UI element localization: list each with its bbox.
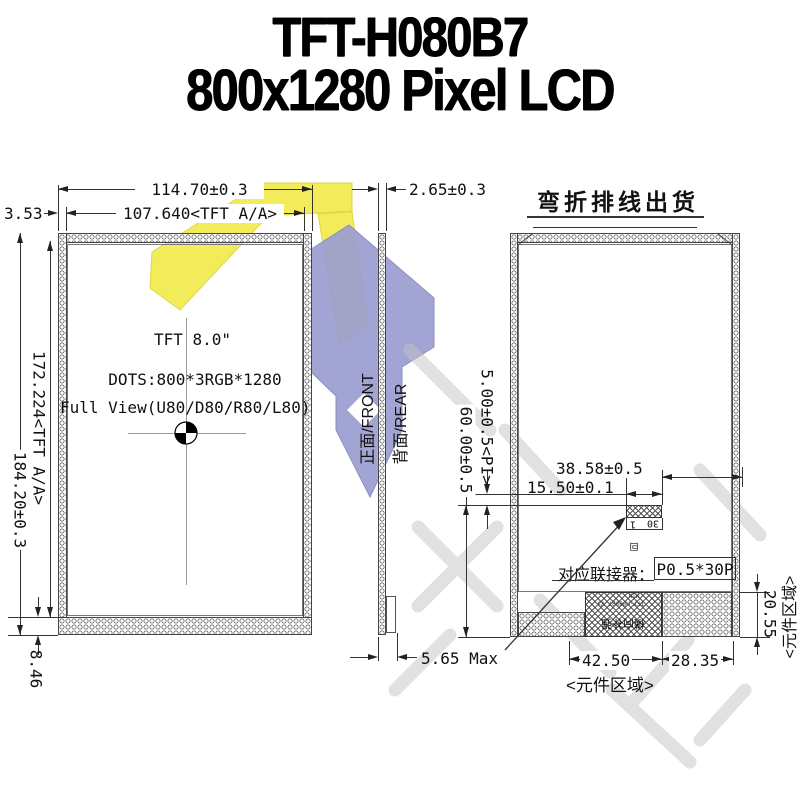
arrow-right — [732, 474, 742, 480]
dim-line — [20, 233, 21, 635]
hatch-bottom-right — [662, 592, 732, 637]
dim-line — [350, 657, 368, 658]
pin-number-30: 30 — [647, 518, 659, 529]
arrow-up — [754, 637, 760, 647]
panel-size-label: TFT 8.0" — [95, 330, 290, 349]
arrow-left — [66, 210, 76, 216]
label-rear-side: 背面/REAR — [387, 384, 411, 465]
arrow-right — [294, 210, 304, 216]
arrow-left — [662, 474, 672, 480]
active-area-outline — [67, 244, 303, 616]
dim-line — [757, 647, 758, 655]
dim-line — [757, 574, 758, 582]
connector — [626, 505, 662, 518]
dim-line — [352, 189, 368, 190]
arrow-up — [35, 635, 41, 645]
note-underline — [552, 580, 654, 581]
dim-line — [466, 497, 467, 637]
ext-line — [378, 637, 379, 661]
hatch-bottom-left — [518, 612, 585, 637]
arrow-left — [397, 654, 407, 660]
centerline-vertical — [186, 318, 187, 585]
ext-line — [304, 207, 305, 231]
ext-line — [733, 641, 734, 665]
dim-2835: 28.35 — [669, 651, 721, 670]
dim-line — [757, 592, 758, 637]
dim-3858: 38.58±0.5 — [556, 459, 643, 478]
dim-width-outer: 114.70±0.3 — [135, 180, 264, 199]
tiny-print-model: TFT-H080B7 V3 — [598, 600, 645, 607]
dim-1550: 15.50±0.1 — [527, 478, 614, 497]
dim-line — [38, 597, 39, 607]
side-bar — [378, 233, 386, 635]
arrow-up — [463, 505, 469, 515]
arrow-right — [302, 186, 312, 192]
arrow-down — [47, 607, 53, 617]
arrow-left — [58, 186, 68, 192]
connector-note-value: P0.5*30P — [654, 560, 736, 579]
dim-width-aa: 107.640<TFT A/A> — [116, 204, 284, 223]
panel-view-label: Full View(U80/D80/R80/L80) — [60, 398, 310, 417]
pin-strip-line — [662, 518, 663, 530]
arrow-left — [386, 186, 396, 192]
dim-4250: 42.50 — [580, 651, 632, 670]
drawing-sheet: TFT-H080B7 800x1280 Pixel LCD TFT 8.0" D… — [0, 0, 800, 800]
dim-total-height: 60.00±0.5 — [457, 405, 476, 496]
dim-offset-left: 3.53 — [4, 204, 43, 223]
dim-pi-offset: 5.00±0.5<PI> — [478, 369, 497, 485]
label-front-side: 正面/FRONT — [354, 373, 378, 465]
arrow-right — [368, 654, 378, 660]
dim-line — [50, 241, 51, 617]
dim-line — [407, 657, 417, 658]
connector-note-label: 对应联接器： — [558, 561, 654, 585]
arrow-down — [463, 627, 469, 637]
arrow-right — [723, 656, 733, 662]
ext-line — [458, 637, 510, 638]
pin-number-1: 1 — [630, 519, 636, 530]
dim-thickness: 2.65±0.3 — [409, 180, 486, 199]
arrow-up — [484, 505, 490, 515]
dim-offset-bottom: 8.46 — [27, 650, 46, 689]
arrow-up — [17, 233, 23, 243]
dim-line — [396, 189, 406, 190]
page-title-resolution: 800x1280 Pixel LCD — [64, 57, 736, 124]
pin1-mark: 囙 — [629, 541, 638, 554]
tiny-print-min: MIN — [629, 592, 640, 599]
panel-dots-label: DOTS:800*3RGB*1280 — [85, 370, 305, 389]
title-underline — [533, 227, 697, 228]
arrow-left — [626, 491, 636, 497]
dim-max-thickness: 5.65 Max — [421, 649, 498, 668]
dim-height-aa: 172.224<TFT A/A> — [30, 351, 49, 505]
arrow-up — [47, 241, 53, 251]
arrow-right — [652, 491, 662, 497]
dim-line — [662, 477, 742, 478]
dim-line — [487, 515, 488, 529]
ext-line — [378, 183, 379, 231]
arrow-down — [17, 625, 23, 635]
ext-line — [8, 635, 58, 636]
component-area-label-right: <元件区域> — [776, 576, 800, 659]
component-area-label-bottom: <元件区域> — [566, 671, 654, 696]
centerline-horizontal — [128, 433, 246, 434]
fpc-step — [386, 596, 396, 633]
title-underline — [527, 216, 704, 218]
arrow-down — [484, 484, 490, 494]
arrow-left — [569, 656, 579, 662]
arrow-down — [754, 582, 760, 592]
rear-view-title: 弯折排线出货 — [528, 183, 708, 217]
ext-line — [312, 185, 313, 231]
dim-height-outer: 184.20±0.3 — [11, 450, 30, 550]
inner-outline — [518, 244, 732, 592]
arrow-down — [35, 607, 41, 617]
arrow-right — [652, 656, 662, 662]
arrow-right — [48, 210, 58, 216]
stiffener-label: 横向补强 — [601, 616, 645, 632]
ext-line — [8, 617, 66, 618]
arrow-right — [368, 186, 378, 192]
ext-line — [742, 467, 743, 487]
